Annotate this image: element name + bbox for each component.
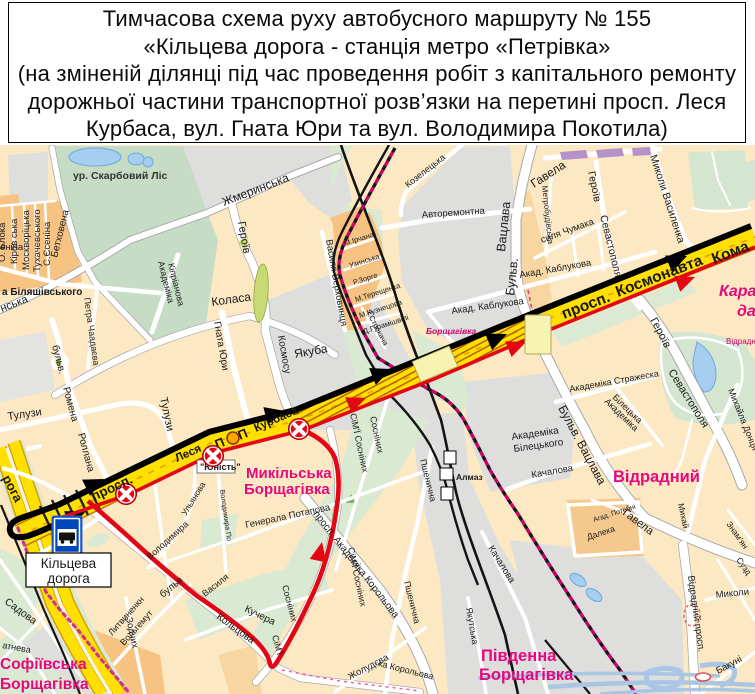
svg-text:Микільська: Микільська: [246, 465, 332, 482]
svg-text:Відрадний: Відрадний: [613, 468, 700, 486]
svg-text:ур. Скарбовий Ліс: ур. Скарбовий Ліс: [73, 170, 168, 182]
svg-text:Борщагівка: Борщагівка: [426, 326, 477, 336]
svg-text:а Біляшівського: а Біляшівського: [2, 287, 82, 298]
svg-text:еніна: еніна: [0, 242, 24, 253]
svg-text:Борщагівка: Борщагівка: [0, 676, 89, 693]
svg-text:Алмаз: Алмаз: [456, 472, 483, 482]
svg-text:Південна: Південна: [481, 647, 557, 665]
svg-text:Москворіцька: Москворіцька: [21, 209, 32, 270]
svg-text:Борщагівка: Борщагівка: [244, 481, 330, 498]
svg-text:Борщагівка: Борщагівка: [479, 666, 574, 684]
svg-text:Відрадн: Відрадн: [726, 337, 755, 346]
svg-text:Софіївська: Софіївська: [0, 656, 87, 673]
svg-text:Кільцева: Кільцева: [41, 556, 97, 571]
svg-text:да: да: [737, 303, 755, 320]
svg-text:Кара: Кара: [719, 283, 755, 300]
svg-text:С.Єсеніна: С.Єсеніна: [42, 221, 53, 266]
svg-text:дорога: дорога: [47, 571, 90, 586]
